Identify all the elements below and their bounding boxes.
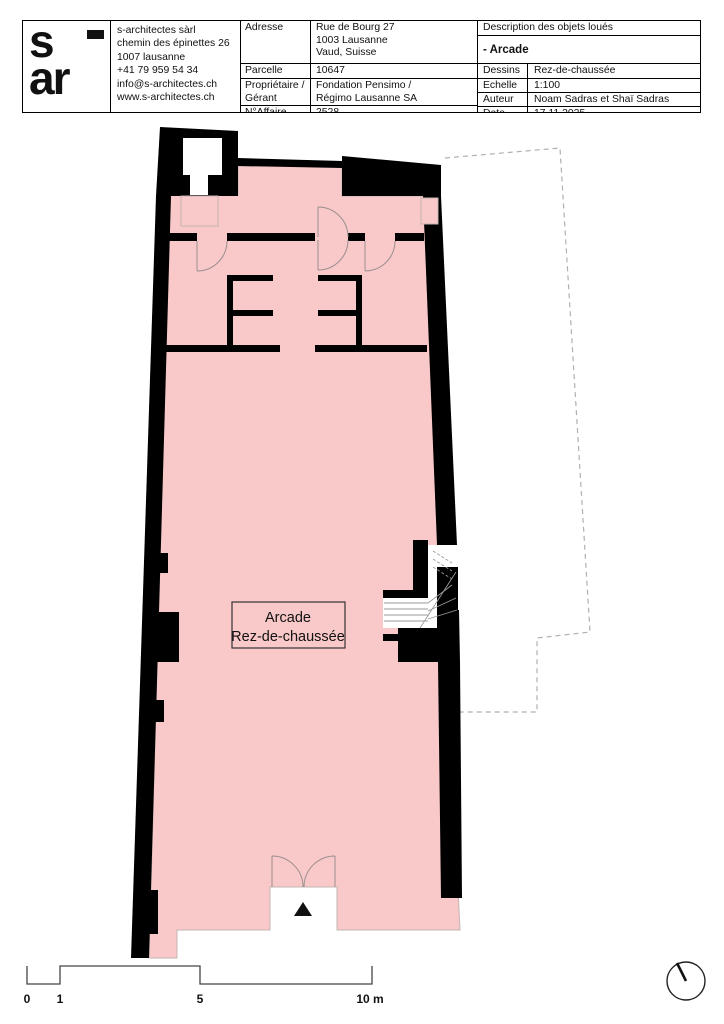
wall-pilaster-1 [158, 553, 168, 573]
scale-bar: 0 1 5 10 m [24, 966, 384, 1006]
wall-corridor-seg1 [167, 233, 197, 241]
wall-corridor-seg2 [227, 233, 315, 241]
wall-pilaster-4 [147, 890, 158, 934]
wall-corridor-seg3 [348, 233, 365, 241]
scale-bar-line [27, 966, 372, 984]
partition-left-spine [227, 275, 233, 352]
architectural-plan-sheet: { "colors": { "floor_pink": "#f9c8c8", "… [0, 0, 724, 1024]
scale-label-0: 0 [24, 992, 31, 1006]
niche-right [421, 198, 438, 224]
parcel-dashed-outline [445, 148, 590, 712]
scale-label-10m: 10 m [356, 992, 383, 1006]
scale-label-1: 1 [57, 992, 64, 1006]
partition-left-stub2 [233, 310, 273, 316]
room-label-line1: Arcade [265, 610, 311, 626]
wall-pilaster-3 [152, 700, 164, 722]
wall-corridor-seg4 [395, 233, 424, 241]
shaft-slot [190, 175, 208, 195]
wall-mid-seg1 [166, 345, 280, 352]
wall-mid-seg2 [315, 345, 427, 352]
north-indicator-icon [667, 962, 705, 1000]
shaft-opening [183, 138, 222, 175]
partition-right-stub1 [318, 275, 356, 281]
partition-right-stub2 [318, 310, 356, 316]
niche-left [181, 196, 218, 226]
scale-label-5: 5 [197, 992, 204, 1006]
wall-stair-stub2 [383, 634, 398, 641]
wall-right-lower [438, 662, 462, 898]
wall-pilaster-2 [155, 612, 179, 662]
floor-plan-drawing: Arcade Rez-de-chaussée 0 1 5 10 m [0, 0, 724, 1024]
wall-stair-vertical [413, 540, 428, 592]
partition-right-spine [356, 275, 362, 352]
wall-top-right-block [342, 156, 441, 196]
wall-stair-stub [383, 590, 428, 598]
room-label-line2: Rez-de-chaussée [231, 629, 345, 645]
entrance-arrow-icon [294, 902, 312, 916]
partition-left-stub1 [233, 275, 273, 281]
